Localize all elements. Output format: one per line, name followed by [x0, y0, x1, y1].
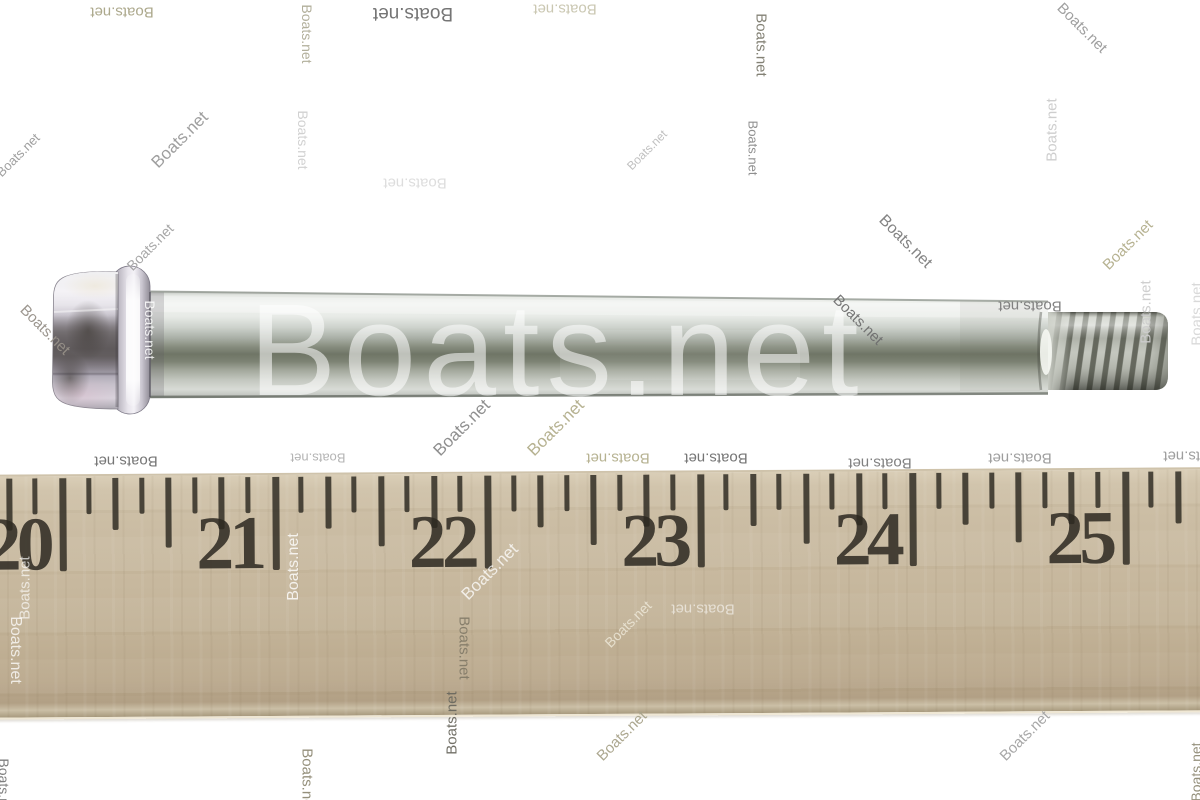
ruler-tick — [59, 478, 67, 571]
ruler-tick — [1175, 471, 1181, 523]
bolt-threads — [1044, 310, 1174, 392]
ruler-tick — [139, 478, 144, 514]
ruler-tick — [112, 478, 118, 530]
ruler-tick — [325, 477, 331, 529]
ruler-tick — [1122, 472, 1130, 565]
ruler-tick — [909, 473, 917, 566]
ruler-tick — [1148, 472, 1153, 508]
bolt-shaft — [150, 291, 1048, 398]
ruler-tick — [86, 478, 91, 514]
ruler-tick — [936, 473, 941, 509]
product-photo: Boats.net 202122232425 Boats.netBoats.ne… — [0, 0, 1200, 800]
ruler-number: 23 — [621, 502, 691, 578]
ruler-tick — [298, 477, 303, 513]
ruler-number: 25 — [1046, 500, 1116, 576]
ruler-tick — [166, 478, 172, 548]
ruler-tick — [962, 473, 968, 525]
ruler-tick — [1016, 472, 1022, 542]
ruler-tick — [351, 476, 356, 512]
ruler-tick — [750, 474, 756, 526]
ruler-tick — [723, 474, 728, 510]
ruler-number: 24 — [833, 501, 903, 577]
ruler-number: 20 — [0, 506, 54, 582]
ruler-tick — [697, 474, 705, 567]
ruler-tick — [511, 475, 516, 511]
ruler-tick — [776, 474, 781, 510]
ruler-tick — [484, 476, 492, 569]
ruler-number: 22 — [408, 504, 478, 580]
ruler-tick — [378, 476, 384, 546]
ruler-tick — [803, 474, 809, 544]
bolt-hex-head — [40, 272, 127, 413]
ruler-tick — [591, 475, 597, 545]
wooden-ruler: 202122232425 — [0, 467, 1200, 719]
ruler-tick — [989, 473, 994, 509]
ruler-tick — [537, 475, 543, 527]
ruler-tick — [272, 477, 280, 570]
ruler-tick — [564, 475, 569, 511]
ruler-number: 21 — [196, 505, 266, 581]
